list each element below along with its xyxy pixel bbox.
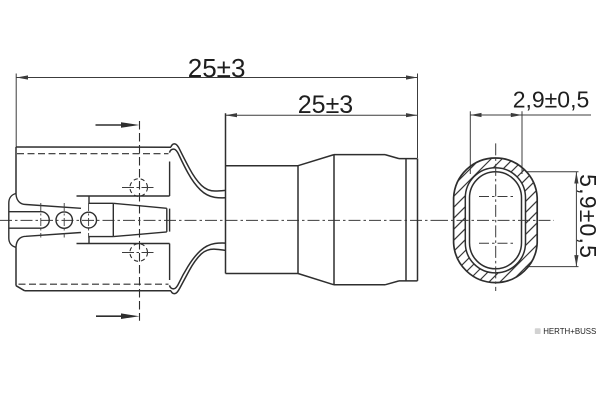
svg-text:25±3: 25±3 xyxy=(188,53,246,83)
svg-text:2,9±0,5: 2,9±0,5 xyxy=(513,86,590,112)
svg-text:25±3: 25±3 xyxy=(298,91,353,119)
svg-text:HERTH+BUSS: HERTH+BUSS xyxy=(543,327,596,336)
svg-text:5,9±0,5: 5,9±0,5 xyxy=(575,174,600,259)
